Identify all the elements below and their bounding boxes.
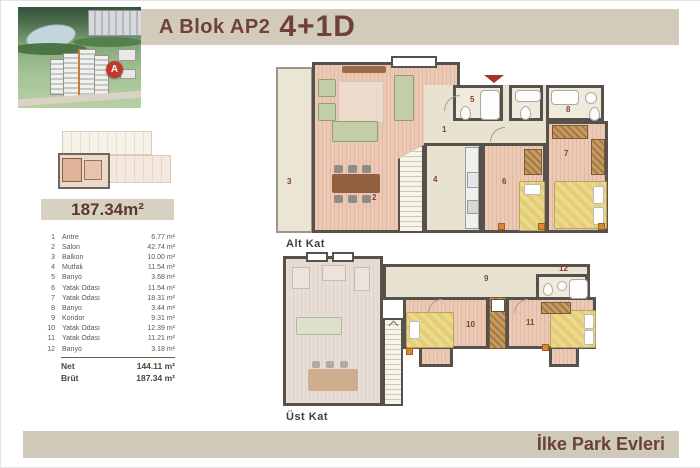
window: [391, 56, 437, 68]
table-row: 5Banyo3.68 m²: [45, 273, 175, 283]
armchair: [318, 103, 336, 121]
alt-kat-label: Alt Kat: [286, 238, 325, 250]
net-total-row: Net 144.11 m²: [61, 361, 175, 371]
room-area: 10.00 m²: [147, 254, 175, 261]
plan-room-number: 3: [287, 177, 291, 186]
alt-kat-floor-plan: 3 2 1 5 4 6 7 8: [276, 57, 613, 233]
plan-room-number: 1: [442, 125, 446, 134]
unit-type-title: 4+1D: [279, 10, 356, 44]
sink: [585, 92, 597, 104]
plan-room-number: 5: [470, 95, 474, 104]
chair-faint: [340, 361, 348, 368]
wardrobe: [541, 302, 571, 314]
dining-table: [332, 174, 380, 193]
wardrobe: [552, 125, 588, 139]
salon-void-view: [283, 256, 383, 406]
room-name: Banyo: [62, 346, 151, 353]
room-name: Yatak Odası: [62, 335, 148, 342]
shaft-window: [491, 299, 505, 312]
title-bar: A Blok AP2 4+1D: [141, 9, 679, 45]
room-banyo-5: [453, 85, 503, 121]
table-row: 2Salon42.74 m²: [45, 242, 175, 252]
radiator-dot: [406, 348, 413, 355]
room-balkon: [276, 67, 313, 233]
room-area: 11.54 m²: [148, 264, 175, 271]
window: [332, 252, 354, 262]
bathtub: [551, 90, 579, 105]
brut-value: 187.34 m²: [136, 373, 175, 383]
table-row: 4Mutfak11.54 m²: [45, 263, 175, 273]
block-a-marker: A: [106, 61, 123, 78]
bathtub: [515, 90, 541, 102]
room-name: Mutfak: [62, 264, 148, 271]
stove: [467, 200, 479, 214]
armchair: [318, 79, 336, 97]
toilet: [460, 106, 471, 120]
room-no: 9: [45, 315, 55, 322]
table-row: 10Yatak Odası12.39 m²: [45, 324, 175, 334]
plan-room-number: 4: [433, 175, 437, 184]
key-plan-highlighted-unit: [58, 153, 110, 189]
net-value: 144.11 m²: [137, 361, 175, 371]
entrance-arrow-icon: [484, 75, 504, 83]
room-banyo-12: [536, 274, 588, 300]
room-banyo-8: [546, 85, 604, 121]
table-row: 1Antre6.77 m²: [45, 232, 175, 242]
room-no: 5: [45, 274, 55, 281]
table-row: 8Banyo3.44 m²: [45, 303, 175, 313]
room-name: Balkon: [62, 254, 147, 261]
key-plan-room: [84, 160, 102, 180]
plan-room-number: 12: [559, 264, 568, 273]
room-area: 12.39 m²: [147, 325, 175, 332]
chair-faint: [326, 361, 334, 368]
room-no: 11: [45, 335, 55, 342]
room-area: 11.21 m²: [148, 335, 175, 342]
net-label: Net: [61, 361, 137, 371]
room-no: 1: [45, 234, 55, 241]
table-row: 12Banyo3.18 m²: [45, 344, 175, 354]
tree-band: [73, 37, 141, 47]
room-name: Antre: [62, 234, 151, 241]
kitchen-sink: [467, 172, 479, 188]
room-name: Koridor: [62, 315, 151, 322]
room-no: 4: [45, 264, 55, 271]
pillow: [584, 330, 594, 345]
industrial-buildings: [88, 10, 141, 36]
room-area: 3.44 m²: [151, 305, 175, 312]
dining-chair: [348, 165, 357, 173]
room-area: 3.18 m²: [151, 346, 175, 353]
plan-room-number: 11: [526, 318, 534, 327]
radiator-dot: [598, 223, 605, 230]
totals-divider: [61, 357, 175, 358]
room-area: 3.68 m²: [151, 274, 175, 281]
table-row: 7Yatak Odası18.31 m²: [45, 293, 175, 303]
wardrobe: [591, 139, 605, 175]
armchair-faint: [322, 265, 346, 281]
room-yatak-10-notch: [419, 346, 453, 367]
sink: [557, 281, 567, 291]
block-title: A Blok AP2: [159, 16, 270, 39]
key-plan-upper-wing: [62, 131, 152, 155]
table-row: 9Koridor9.31 m²: [45, 314, 175, 324]
room-no: 8: [45, 305, 55, 312]
room-yatak-11-notch: [549, 346, 579, 367]
table-row: 11Yatak Odası11.21 m²: [45, 334, 175, 344]
toilet: [589, 107, 600, 121]
stairs-up: [383, 318, 403, 406]
plan-room-number: 8: [566, 105, 570, 114]
key-plan-thumbnail: [56, 123, 171, 195]
room-no: 12: [45, 346, 55, 353]
room-area: 11.54 m²: [148, 285, 175, 292]
dining-table-faint: [308, 369, 358, 391]
room-area: 18.31 m²: [147, 295, 175, 302]
room-list: 1Antre6.77 m² 2Salon42.74 m² 3Balkon10.0…: [45, 232, 175, 354]
side-sofa: [394, 75, 414, 121]
room-no: 10: [45, 325, 55, 332]
site-aerial-image: A: [18, 7, 141, 108]
plan-room-number: 6: [502, 177, 506, 186]
sofa: [332, 121, 378, 142]
project-name: İlke Park Evleri: [537, 434, 665, 454]
ust-kat-label: Üst Kat: [286, 411, 328, 423]
dining-chair: [334, 165, 343, 173]
toilet: [520, 106, 531, 120]
room-name: Yatak Odası: [62, 295, 147, 302]
room-name: Banyo: [62, 305, 151, 312]
room-name: Yatak Odası: [62, 285, 148, 292]
dining-chair: [348, 195, 357, 203]
bathtub: [480, 90, 500, 120]
brut-label: Brüt: [61, 373, 136, 383]
single-bed: [406, 312, 454, 348]
room-name: Banyo: [62, 274, 151, 281]
room-area: 6.77 m²: [151, 234, 175, 241]
total-area-badge: 187.34m²: [41, 199, 174, 220]
chair-faint: [312, 361, 320, 368]
pillow: [409, 321, 420, 339]
room-no: 3: [45, 254, 55, 261]
rug: [338, 81, 384, 123]
brut-total-row: Brüt 187.34 m²: [61, 373, 175, 383]
toilet: [543, 283, 553, 296]
room-name: Salon: [62, 244, 147, 251]
apartment-tower: [63, 53, 79, 99]
project-footer-bar: İlke Park Evleri: [23, 431, 679, 458]
kitchen-counter: [465, 147, 479, 229]
double-bed: [554, 181, 607, 229]
room-area: 42.74 m²: [147, 244, 175, 251]
pillow: [584, 314, 594, 329]
brochure-page: A A Blok AP2 4+1D 187.34m² 1Antre6.77 m²…: [0, 0, 700, 468]
armchair-faint: [292, 267, 310, 289]
plan-room-number: 7: [564, 149, 568, 158]
ust-kat-floor-plan: 9 10 11 12: [278, 252, 615, 409]
stairs-down: [398, 145, 424, 233]
room-area: 9.31 m²: [151, 315, 175, 322]
radiator-dot: [498, 223, 505, 230]
tv-console: [342, 66, 386, 73]
low-building: [118, 49, 136, 61]
bathtub: [569, 279, 588, 299]
apartment-tower: [50, 59, 64, 95]
radiator-dot: [538, 223, 545, 230]
dining-chair: [334, 195, 343, 203]
closet: [524, 149, 542, 175]
plan-room-number: 9: [484, 274, 488, 283]
room-no: 7: [45, 295, 55, 302]
dining-chair: [362, 165, 371, 173]
radiator-dot: [542, 344, 549, 351]
dining-chair: [362, 195, 371, 203]
room-no: 2: [45, 244, 55, 251]
pillow: [593, 186, 604, 204]
apartment-tower: [94, 55, 109, 97]
room-name: Yatak Odası: [62, 325, 147, 332]
room-wc: [509, 85, 543, 121]
key-plan-room: [62, 158, 82, 182]
pillow: [524, 184, 541, 195]
table-row: 6Yatak Odası11.54 m²: [45, 283, 175, 293]
room-no: 6: [45, 285, 55, 292]
double-bed: [550, 310, 596, 348]
plan-room-number: 10: [466, 320, 475, 329]
armchair-faint: [354, 267, 370, 291]
table-row: 3Balkon10.00 m²: [45, 252, 175, 262]
plan-room-number: 2: [372, 193, 376, 202]
sofa-faint: [296, 317, 342, 335]
window: [306, 252, 328, 262]
